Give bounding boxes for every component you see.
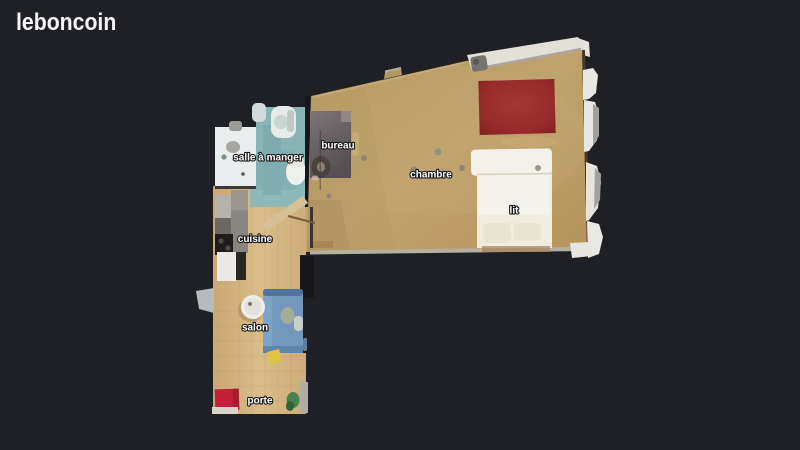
svg-text:lit: lit (510, 206, 520, 217)
svg-text:cuisine: cuisine (238, 234, 273, 245)
svg-text:salon: salon (242, 323, 268, 334)
svg-text:bureau: bureau (321, 141, 354, 152)
svg-text:porte: porte (248, 396, 273, 407)
svg-text:chambre: chambre (410, 170, 452, 181)
svg-text:salle à manger: salle à manger (233, 153, 303, 164)
